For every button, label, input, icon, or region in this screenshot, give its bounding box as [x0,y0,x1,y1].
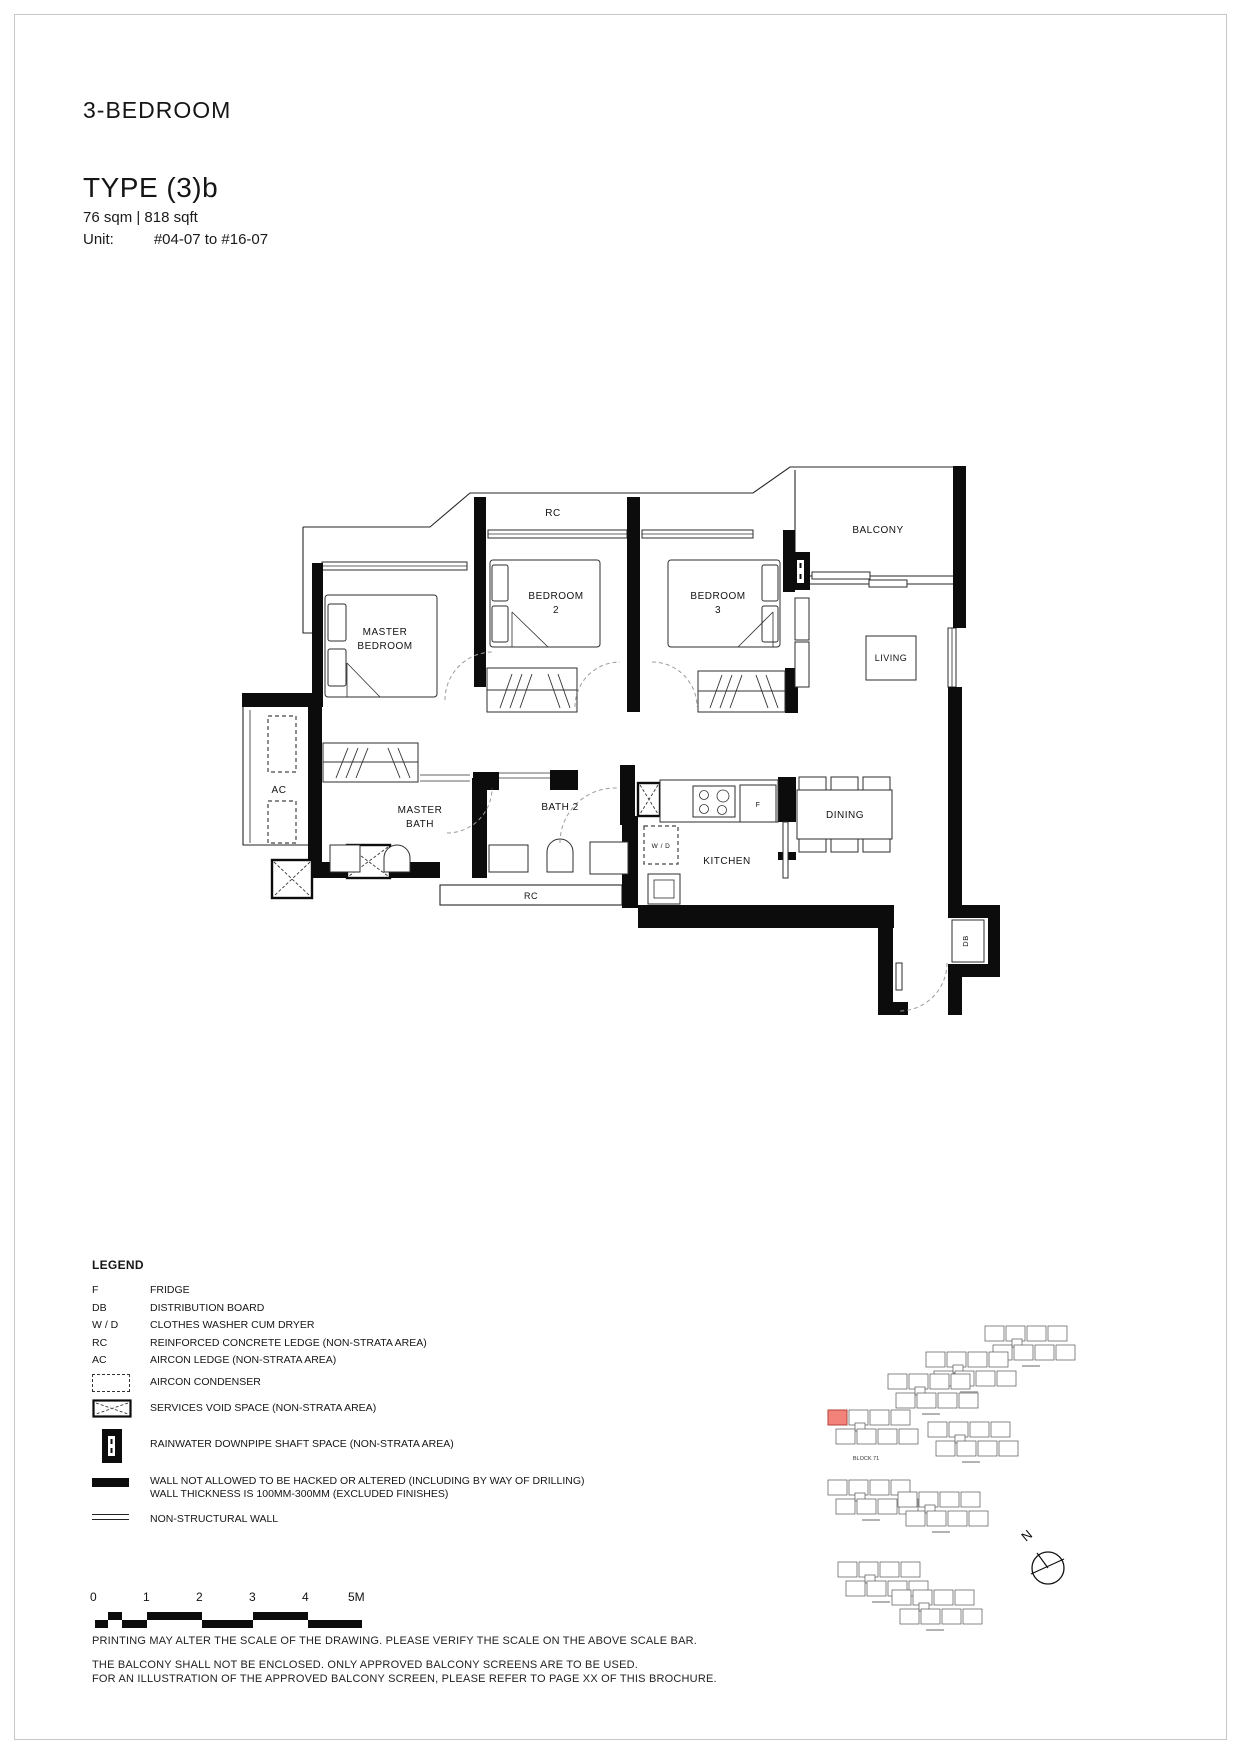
bath2-fixtures [489,839,628,874]
master-bath-label: MASTER [398,805,443,816]
legend-row: AIRCON CONDENSER [92,1373,632,1392]
legend-row: FFRIDGE [92,1284,632,1297]
entry-door-leaf [896,963,902,990]
bedroom2-bed [490,560,600,647]
legend-abbr: F [92,1284,150,1296]
legend-row: SERVICES VOID SPACE (NON-STRATA AREA) [92,1399,632,1421]
site-key-plan: BLOCK 71 N [720,1190,1180,1670]
legend-desc: AIRCON LEDGE (NON-STRATA AREA) [150,1354,336,1367]
highlight-block-caption: BLOCK 71 [853,1456,879,1462]
rc-top-label: RC [545,508,560,519]
north-label: N [1018,1527,1035,1545]
legend-desc: NON-STRUCTURAL WALL [150,1513,278,1526]
services-void-icon [92,1399,150,1421]
legend-abbr: AC [92,1354,150,1366]
non-structural-wall-icon [92,1514,129,1520]
kitchen-sink [648,874,680,904]
scale-tick: 4 [302,1590,309,1604]
fridge-label: F [756,802,761,809]
brochure-page: 3-BEDROOM TYPE (3)b 76 sqm | 818 sqft Un… [0,0,1241,1754]
master-bedroom-label: MASTER [363,627,408,638]
balcony-note-2: FOR AN ILLUSTRATION OF THE APPROVED BALC… [92,1672,732,1686]
unit-label: Unit: [83,231,114,248]
rc-bottom-label: RC [524,891,538,901]
kitchen-fixtures [644,780,788,904]
scale-note: PRINTING MAY ALTER THE SCALE OF THE DRAW… [92,1634,732,1648]
legend-desc2: WALL THICKNESS IS 100MM-300MM (EXCLUDED … [150,1488,584,1501]
rainwater-downpipe-shaft [792,552,810,590]
highlighted-unit [828,1410,847,1425]
rainwater-downpipe-icon [92,1428,150,1467]
scale-bar: 0 1 2 3 4 5M [0,1590,420,1635]
legend-desc: DISTRIBUTION BOARD [150,1302,264,1315]
legend-desc: WALL NOT ALLOWED TO BE HACKED OR ALTERED… [150,1475,584,1488]
kitchen-door-leaf [783,822,788,878]
legend: LEGEND FFRIDGE DBDISTRIBUTION BOARD W / … [92,1258,632,1531]
legend-title: LEGEND [92,1258,632,1272]
legend-row: DBDISTRIBUTION BOARD [92,1302,632,1315]
site-plan-blocks: BLOCK 71 [828,1326,1075,1630]
scale-tick: 5M [348,1590,365,1604]
legend-desc: FRIDGE [150,1284,190,1297]
scale-tick: 1 [143,1590,150,1604]
washer-dryer-label: W / D [652,843,671,850]
ac-label: AC [272,785,287,796]
bedroom3-number: 3 [715,605,721,616]
legend-row: W / DCLOTHES WASHER CUM DRYER [92,1319,632,1332]
page-title: 3-BEDROOM [83,97,231,124]
kitchen-label: KITCHEN [703,856,750,867]
bath2-label: BATH 2 [541,802,578,813]
aircon-condensers [268,716,296,843]
living-furniture [795,598,916,687]
bedroom2-number: 2 [553,605,559,616]
unit-range-row: Unit:#04-07 to #16-07 [83,231,268,248]
scale-tick: 3 [249,1590,256,1604]
north-arrow: N [1018,1527,1064,1584]
balcony-label: BALCONY [852,525,903,536]
unit-area: 76 sqm | 818 sqft [83,209,198,226]
bedroom3-label: BEDROOM [690,591,745,602]
scale-tick: 2 [196,1590,203,1604]
floor-plan: RC BALCONY BEDROOM 2 BEDROOM 3 MASTER BE… [195,400,1045,1050]
structural-wall-icon [92,1478,129,1487]
legend-abbr: RC [92,1337,150,1349]
legend-row: WALL NOT ALLOWED TO BE HACKED OR ALTERED… [92,1475,632,1501]
legend-abbr: DB [92,1302,150,1314]
legend-desc: CLOTHES WASHER CUM DRYER [150,1319,315,1332]
legend-row: RAINWATER DOWNPIPE SHAFT SPACE (NON-STRA… [92,1428,632,1467]
legend-desc: RAINWATER DOWNPIPE SHAFT SPACE (NON-STRA… [150,1438,454,1451]
db-label: DB [961,935,970,946]
unit-range: #04-07 to #16-07 [154,231,268,248]
bedroom3-bed [668,560,780,647]
hob [693,786,735,817]
living-label: LIVING [875,653,908,663]
walls [242,466,1000,1015]
legend-abbr: W / D [92,1319,150,1331]
legend-desc: AIRCON CONDENSER [150,1376,261,1389]
legend-desc: SERVICES VOID SPACE (NON-STRATA AREA) [150,1402,376,1415]
legend-row: ACAIRCON LEDGE (NON-STRATA AREA) [92,1354,632,1367]
legend-desc: REINFORCED CONCRETE LEDGE (NON-STRATA AR… [150,1337,427,1350]
scale-tick: 0 [90,1590,97,1604]
legend-row: NON-STRUCTURAL WALL [92,1511,632,1526]
balcony-note-1: THE BALCONY SHALL NOT BE ENCLOSED. ONLY … [92,1658,732,1672]
dining-label: DINING [826,810,864,821]
aircon-condenser-icon [92,1374,130,1392]
bedroom2-label: BEDROOM [528,591,583,602]
master-bedroom-label2: BEDROOM [357,641,412,652]
legend-row: RCREINFORCED CONCRETE LEDGE (NON-STRATA … [92,1337,632,1350]
master-bath-label2: BATH [406,819,434,830]
unit-type-title: TYPE (3)b [83,172,218,204]
services-void-boxes [272,783,660,898]
